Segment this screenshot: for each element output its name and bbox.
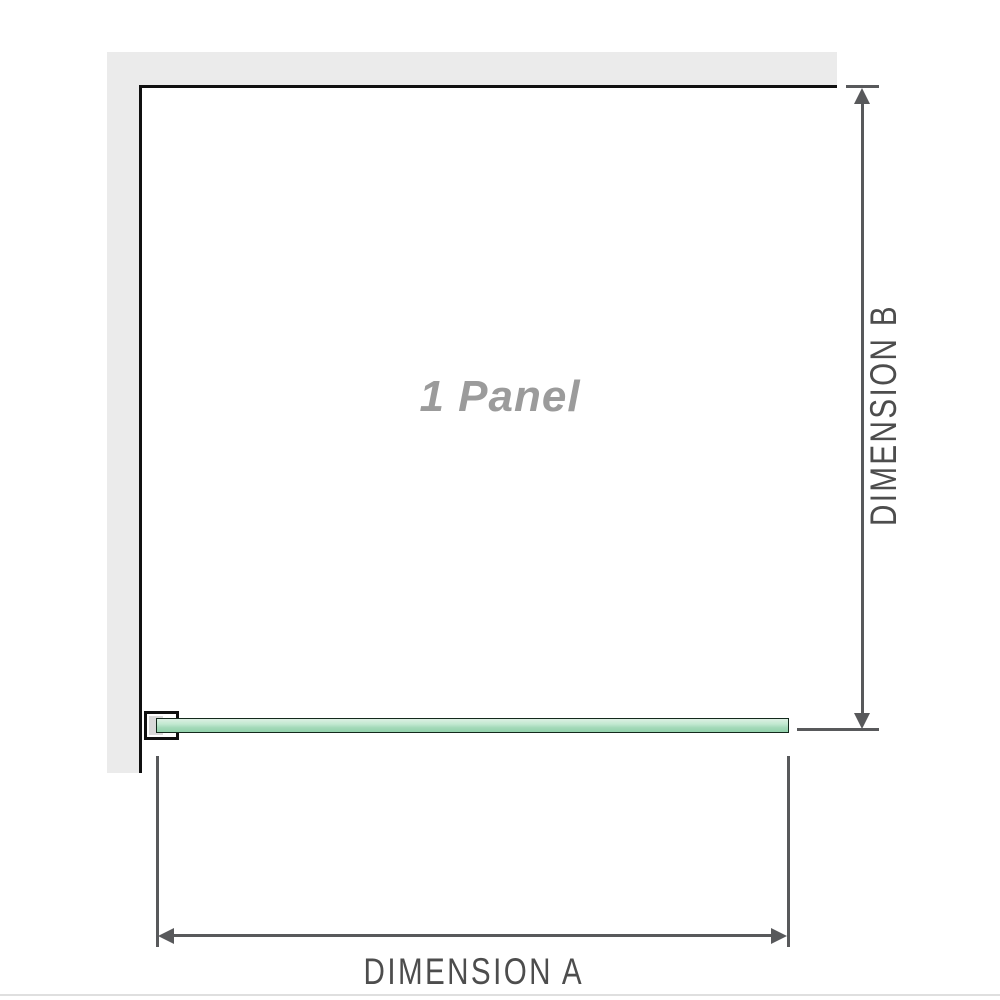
dimension-b-label: DIMENSION B: [863, 304, 905, 526]
dimension-a-arrow-line: [168, 934, 778, 937]
wall-inner-edge-horizontal: [139, 85, 837, 88]
glass-panel-bar: [156, 718, 789, 733]
dimension-b-tick-bottom: [797, 728, 879, 731]
dimension-a-arrowhead-left: [158, 928, 174, 944]
dimension-b-arrowhead-up: [854, 88, 870, 104]
dimension-a-label-wrap: DIMENSION A: [158, 951, 790, 993]
dimension-a-extension-right: [787, 756, 790, 947]
panel-count-label: 1 Panel: [419, 372, 580, 422]
dimension-b-arrowhead-down: [854, 713, 870, 729]
wall-top: [107, 52, 837, 85]
dimension-a-arrowhead-right: [771, 928, 787, 944]
dimension-a-extension-left: [156, 756, 159, 947]
wall-inner-edge-vertical: [139, 85, 142, 773]
bottom-divider-line: [0, 994, 1000, 996]
panel-dimension-diagram: 1 Panel DIMENSION B DIMENSION A: [0, 0, 1000, 1000]
dimension-a-label: DIMENSION A: [364, 951, 584, 993]
wall-left: [107, 52, 139, 773]
